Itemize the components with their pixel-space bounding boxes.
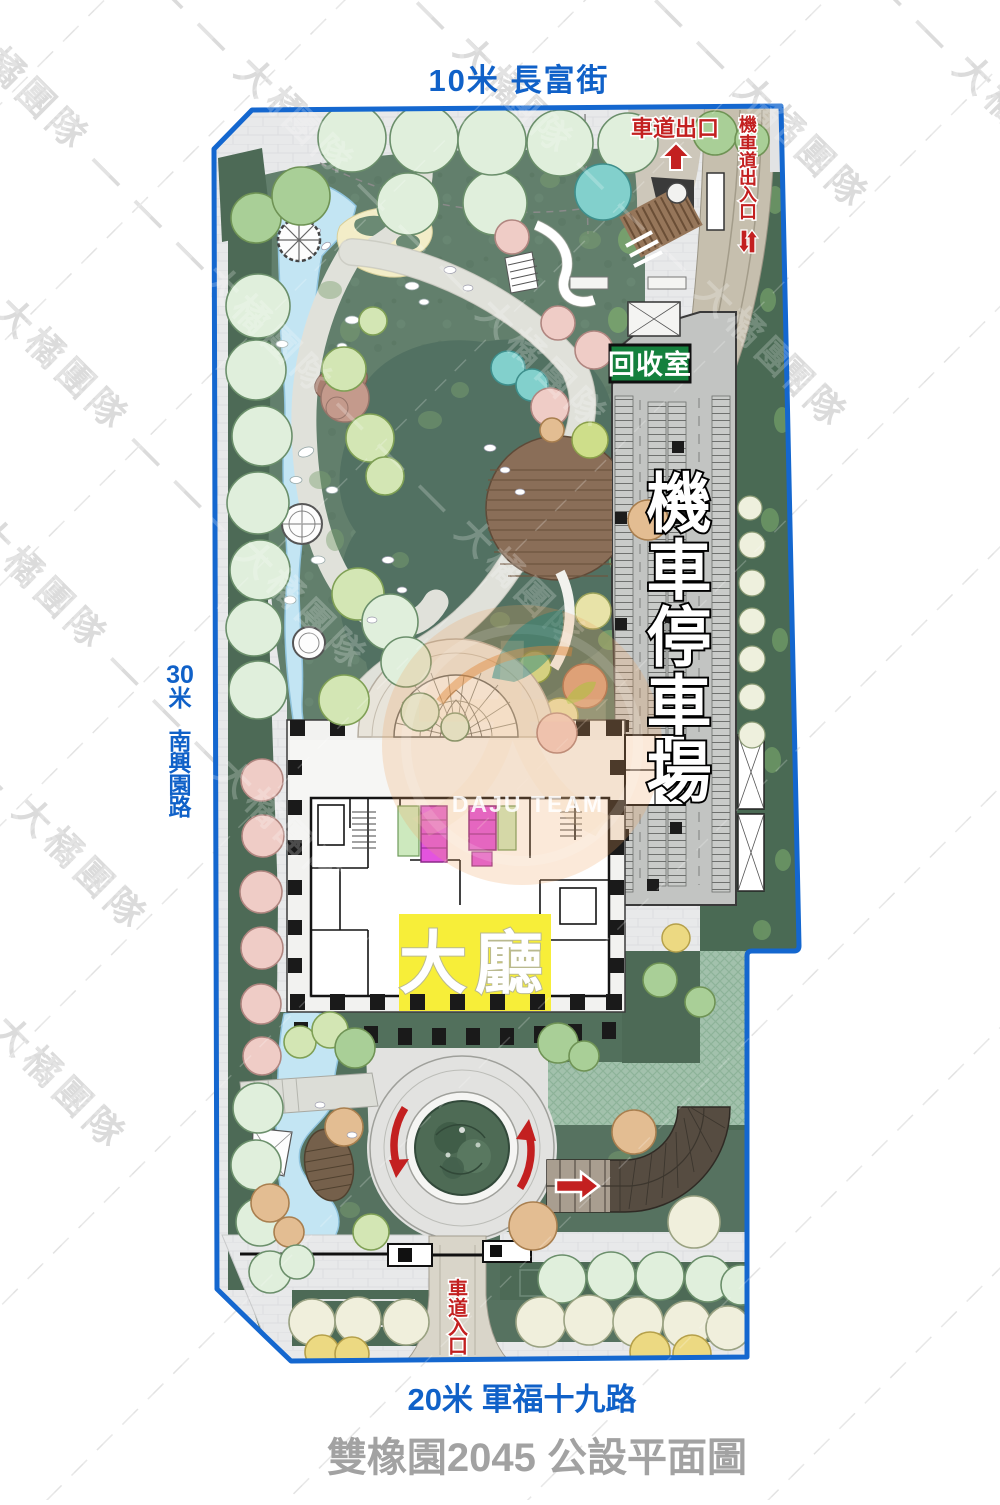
svg-text:10米 長富街: 10米 長富街 [428, 63, 609, 98]
svg-text:車道出口: 車道出口 [631, 116, 719, 141]
svg-text:DAJU TEAM: DAJU TEAM [452, 791, 604, 817]
svg-text:20米 軍福十九路: 20米 軍福十九路 [407, 1382, 637, 1417]
svg-text:場: 場 [646, 736, 711, 809]
svg-text:車: 車 [646, 669, 711, 742]
svg-text:路: 路 [169, 794, 193, 820]
svg-text:機: 機 [646, 467, 711, 540]
svg-text:口: 口 [739, 202, 757, 222]
svg-text:大: 大 [410, 631, 615, 860]
svg-text:車: 車 [646, 534, 711, 607]
svg-text:機: 機 [739, 114, 757, 135]
svg-text:停: 停 [646, 601, 711, 674]
svg-text:米: 米 [169, 685, 193, 711]
svg-text:口: 口 [448, 1336, 468, 1358]
svg-text:雙橡園2045 公設平面圖: 雙橡園2045 公設平面圖 [327, 1436, 747, 1480]
svg-text:大廳: 大廳 [399, 926, 551, 1002]
svg-text:回收室: 回收室 [608, 349, 692, 380]
